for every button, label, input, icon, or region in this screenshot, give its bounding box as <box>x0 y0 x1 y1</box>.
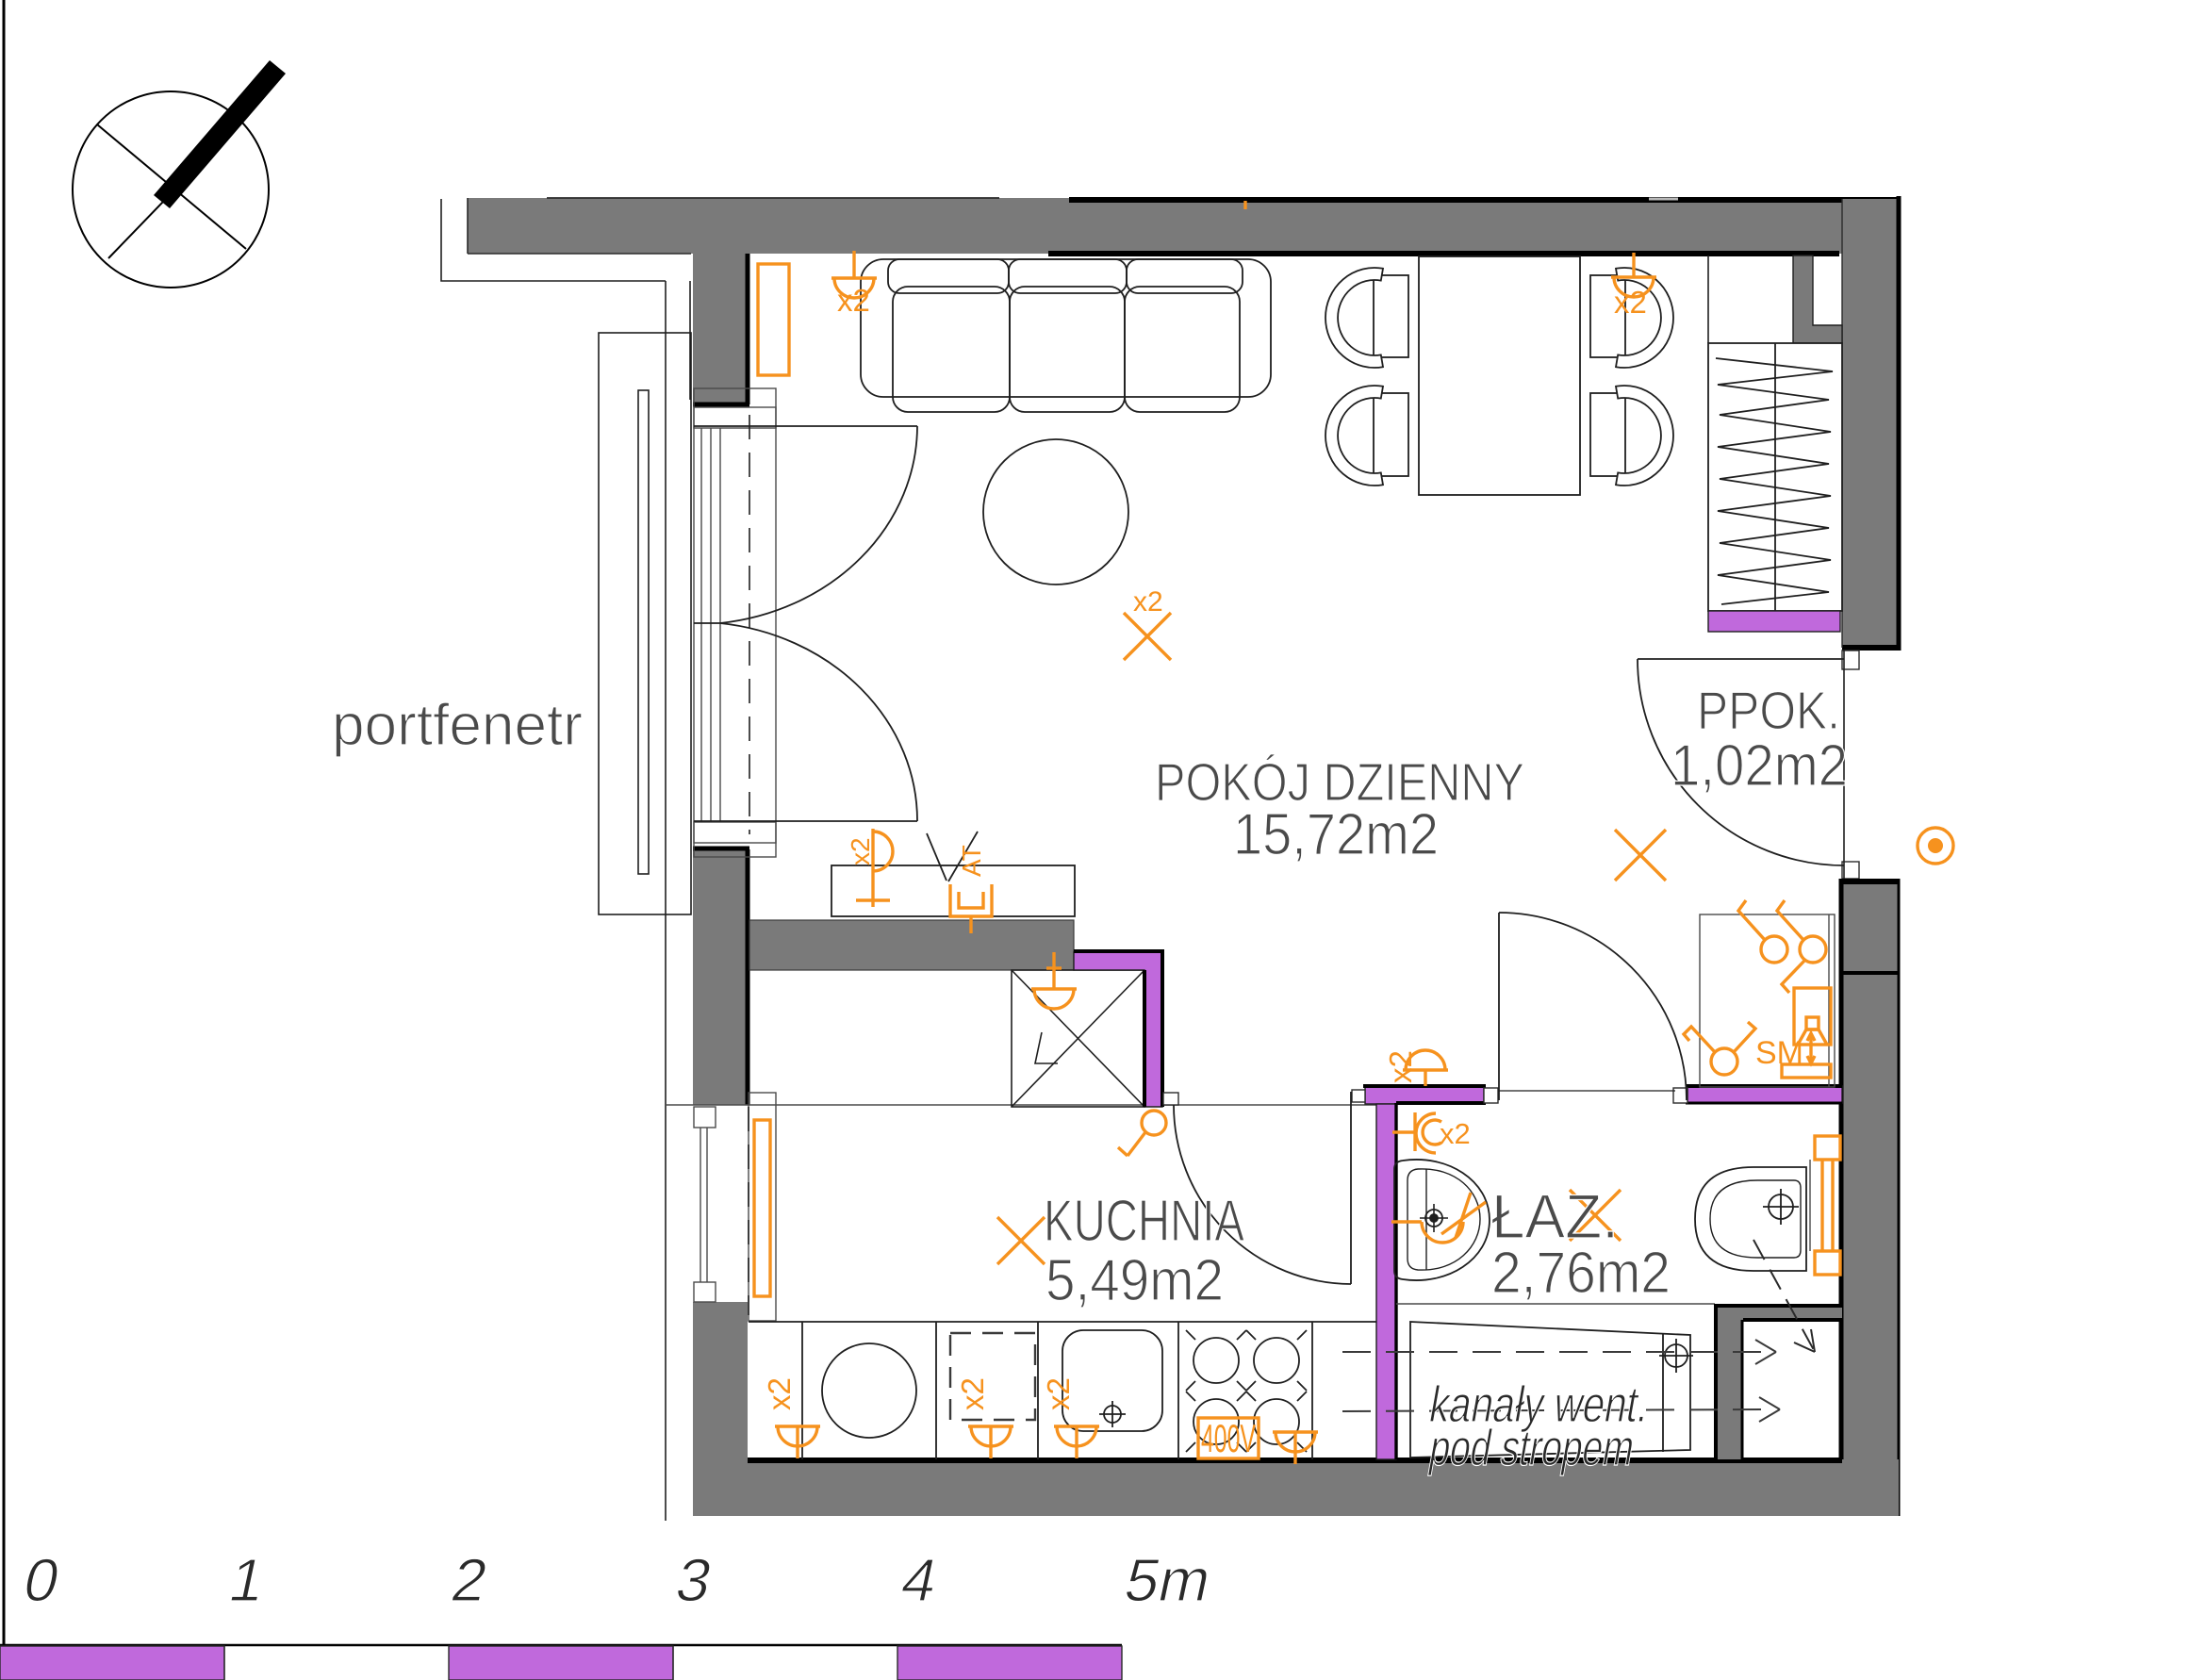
svg-text:x2: x2 <box>837 283 870 318</box>
svg-text:AT: AT <box>957 845 986 877</box>
svg-text:PPOK.: PPOK. <box>1697 681 1840 741</box>
svg-text:x2: x2 <box>955 1377 990 1410</box>
svg-text:x2: x2 <box>1440 1117 1471 1150</box>
svg-text:15,72m2: 15,72m2 <box>1233 802 1439 867</box>
svg-text:5,49m2: 5,49m2 <box>1045 1248 1224 1313</box>
svg-text:portfenetr: portfenetr <box>332 693 583 758</box>
svg-text:5m: 5m <box>1119 1546 1217 1614</box>
svg-text:1,02m2: 1,02m2 <box>1671 733 1848 799</box>
svg-text:x2: x2 <box>846 837 875 865</box>
svg-text:x2: x2 <box>1383 1050 1418 1083</box>
svg-text:2,76m2: 2,76m2 <box>1491 1241 1671 1306</box>
svg-text:x2: x2 <box>1614 285 1647 320</box>
svg-text:SM: SM <box>1755 1035 1803 1071</box>
svg-text:x2: x2 <box>762 1377 797 1410</box>
svg-text:x2: x2 <box>1041 1377 1076 1410</box>
svg-text:400V: 400V <box>1201 1416 1256 1460</box>
svg-text:KUCHNIA: KUCHNIA <box>1044 1189 1244 1254</box>
svg-text:x2: x2 <box>1133 586 1163 618</box>
svg-text:pod stropem: pod stropem <box>1425 1419 1639 1476</box>
